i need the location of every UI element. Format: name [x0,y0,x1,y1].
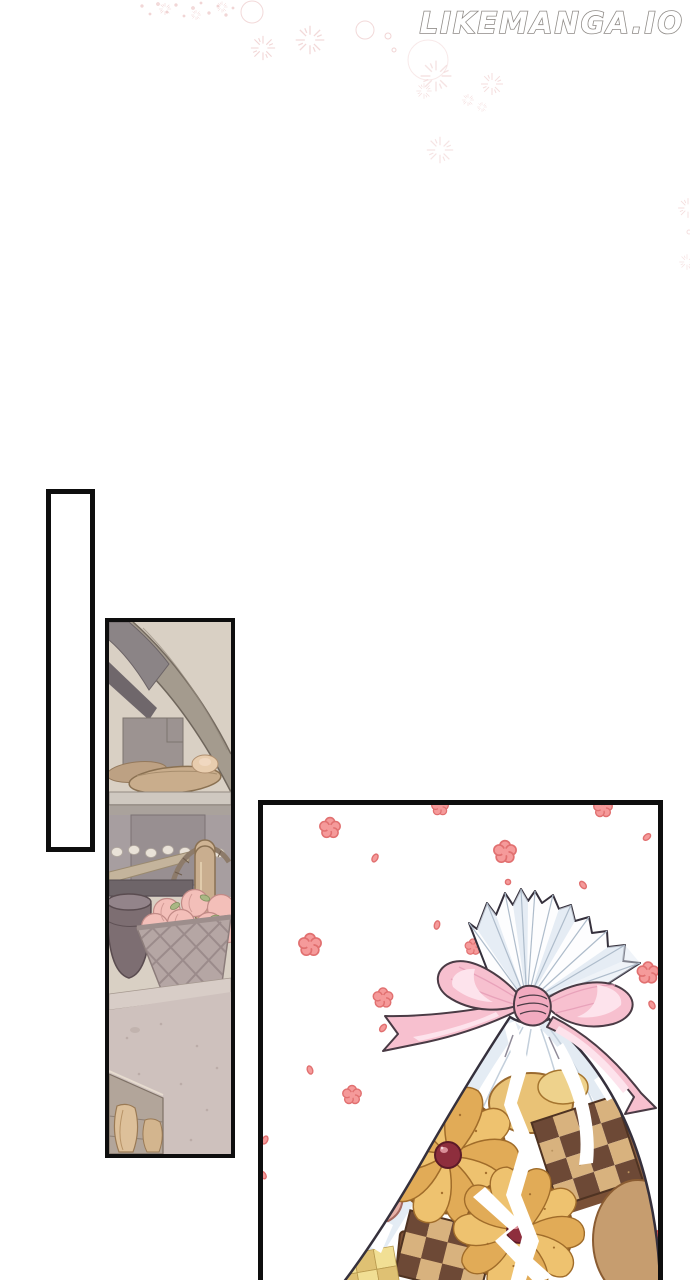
shelf-board [109,792,231,815]
ring-cookie-center [394,1092,436,1134]
manga-page: LIKEMANGA.IO [0,0,690,1280]
empty-narration-panel [46,489,95,852]
gift-bag-panel [258,800,663,1280]
kitchen-scene [109,622,231,1154]
watermark-text: LIKEMANGA.IO [420,6,684,40]
dark-shelf [109,880,193,896]
kitchen-panel [105,618,235,1158]
jam-pastry [333,1160,403,1226]
site-watermark: LIKEMANGA.IO [412,2,688,46]
tan-cookie [317,1201,365,1265]
gift-bag-scene [263,805,658,1280]
sparkle-dust-cluster [141,2,234,20]
